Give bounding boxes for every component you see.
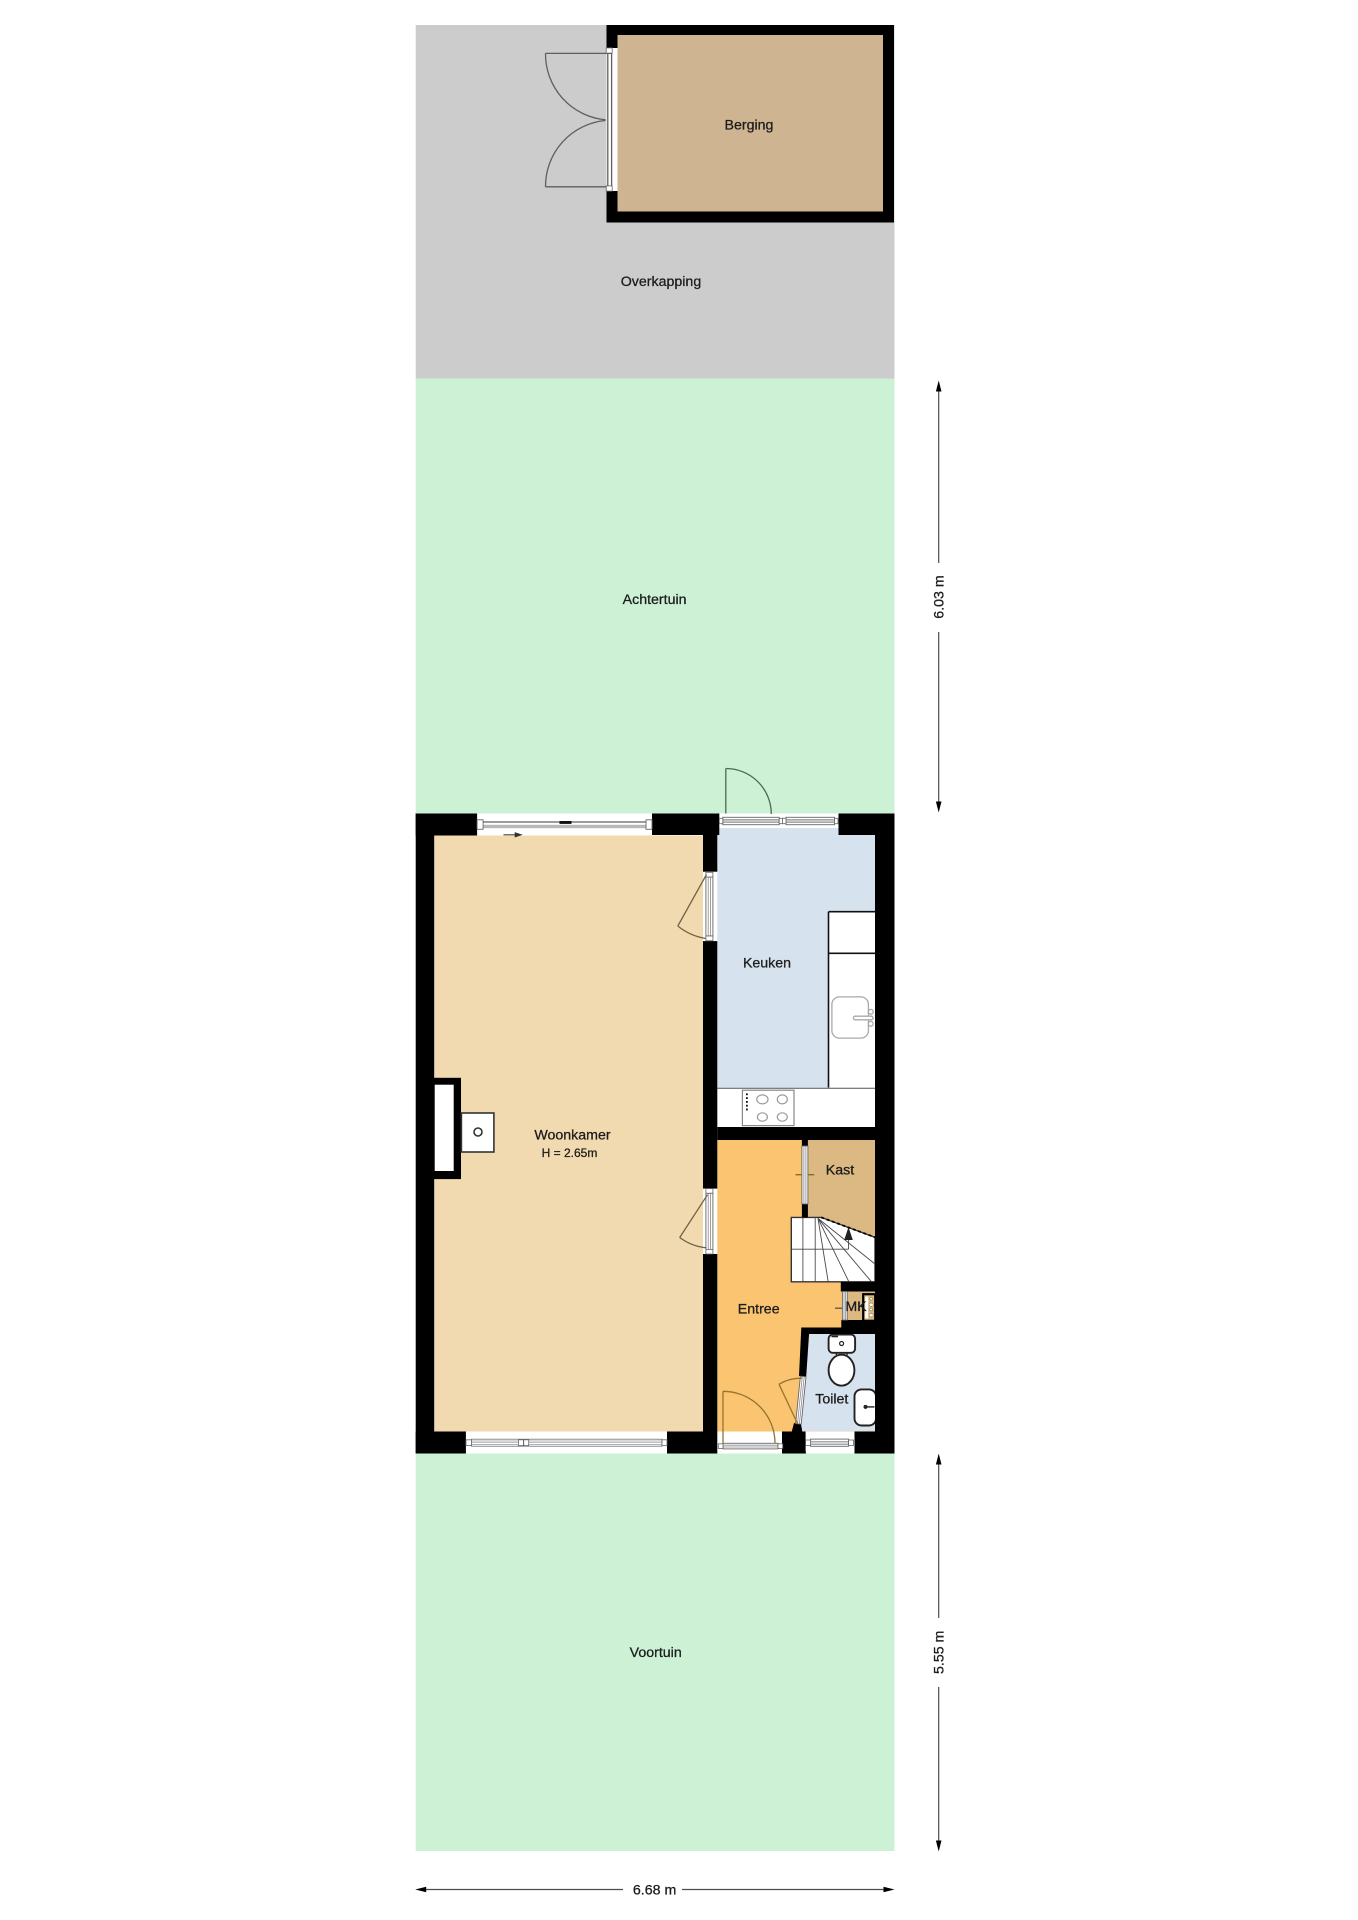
svg-text:H = 2.65m: H = 2.65m [542, 1146, 598, 1160]
svg-text:5.55 m: 5.55 m [932, 1631, 948, 1674]
svg-text:6.03 m: 6.03 m [932, 575, 948, 618]
svg-text:Overkapping: Overkapping [621, 274, 701, 290]
svg-text:6.68 m: 6.68 m [633, 1883, 676, 1899]
svg-text:Entree: Entree [738, 1301, 780, 1317]
svg-text:Kast: Kast [826, 1163, 854, 1179]
svg-text:Woonkamer: Woonkamer [534, 1128, 610, 1144]
svg-text:Keuken: Keuken [743, 956, 791, 972]
svg-text:Achtertuin: Achtertuin [623, 592, 687, 608]
svg-text:Voortuin: Voortuin [630, 1645, 682, 1661]
svg-text:Toilet: Toilet [815, 1392, 848, 1408]
svg-text:Berging: Berging [725, 118, 774, 134]
svg-text:MK: MK [845, 1299, 867, 1315]
